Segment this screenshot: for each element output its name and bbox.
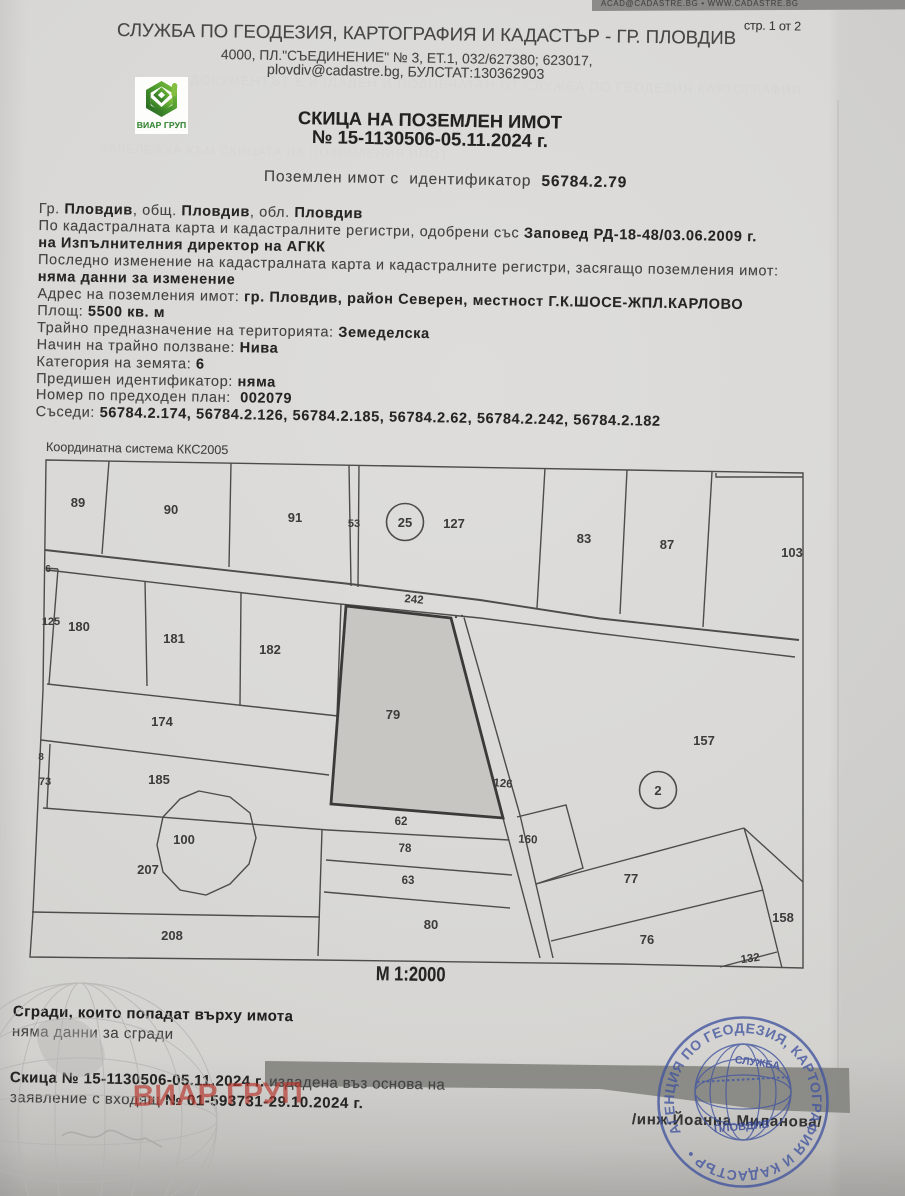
svg-text:8: 8 — [38, 752, 44, 763]
svg-text:77: 77 — [624, 871, 638, 886]
svg-text:6: 6 — [45, 564, 51, 575]
svg-text:87: 87 — [660, 537, 674, 552]
svg-text:181: 181 — [163, 631, 185, 646]
svg-text:73: 73 — [39, 776, 51, 788]
svg-text:157: 157 — [693, 733, 715, 748]
svg-text:25: 25 — [398, 515, 412, 530]
svg-text:ПЛОВДИВ: ПЛОВДИВ — [713, 1119, 770, 1136]
svg-text:89: 89 — [71, 495, 85, 510]
svg-text:100: 100 — [173, 832, 195, 847]
svg-text:185: 185 — [148, 772, 170, 787]
svg-text:76: 76 — [640, 932, 654, 947]
svg-text:158: 158 — [772, 910, 794, 925]
svg-text:80: 80 — [424, 917, 438, 932]
svg-text:62: 62 — [395, 816, 408, 828]
svg-text:207: 207 — [137, 862, 159, 877]
svg-text:79: 79 — [386, 707, 400, 722]
svg-text:90: 90 — [164, 502, 178, 517]
svg-text:160: 160 — [518, 834, 538, 847]
svg-text:83: 83 — [577, 531, 591, 546]
svg-text:126: 126 — [493, 777, 513, 791]
svg-text:174: 174 — [151, 714, 173, 729]
svg-text:182: 182 — [259, 642, 281, 657]
svg-text:125: 125 — [42, 616, 60, 628]
svg-text:242: 242 — [404, 593, 424, 607]
svg-text:78: 78 — [399, 843, 412, 855]
svg-text:2: 2 — [654, 783, 661, 798]
svg-text:180: 180 — [68, 619, 90, 634]
svg-text:63: 63 — [402, 875, 415, 887]
svg-text:ВИАР ГРУП: ВИАР ГРУП — [132, 1076, 303, 1113]
svg-text:127: 127 — [443, 516, 465, 531]
svg-text:53: 53 — [348, 518, 360, 530]
svg-text:103: 103 — [781, 545, 803, 560]
svg-text:132: 132 — [740, 952, 761, 967]
svg-text:АГЕНЦИЯ ПО ГЕОДЕЗИЯ, КАРТОГРАФ: АГЕНЦИЯ ПО ГЕОДЕЗИЯ, КАРТОГРАФИЯ И КАДАС… — [632, 991, 854, 1196]
svg-text:208: 208 — [161, 928, 183, 943]
svg-text:91: 91 — [288, 510, 302, 525]
